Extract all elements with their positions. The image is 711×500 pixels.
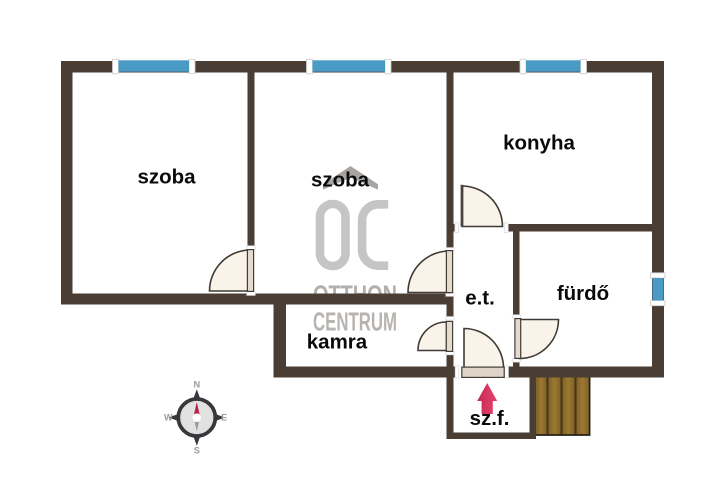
svg-text:e.t.: e.t. (465, 287, 495, 310)
svg-text:S: S (194, 446, 200, 456)
svg-text:konyha: konyha (503, 132, 575, 155)
svg-text:E: E (221, 413, 227, 423)
svg-text:szoba: szoba (311, 169, 370, 192)
svg-text:szoba: szoba (137, 166, 196, 189)
svg-text:W: W (164, 413, 173, 423)
svg-text:sz.f.: sz.f. (470, 407, 510, 430)
svg-text:N: N (193, 380, 200, 390)
svg-text:kamra: kamra (307, 331, 368, 354)
svg-text:fürdő: fürdő (557, 282, 609, 305)
